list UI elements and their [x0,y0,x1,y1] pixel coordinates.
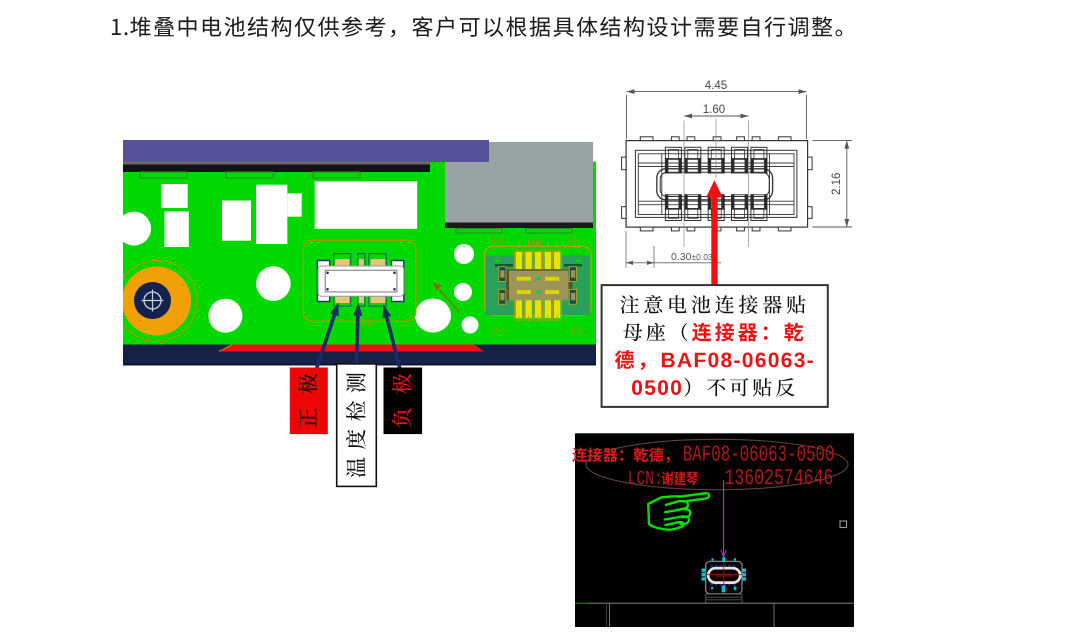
svg-text:0 1: 0 1 [493,326,506,336]
svg-text:1.0: 1.0 [492,236,505,246]
svg-text:2.16: 2.16 [831,173,843,195]
svg-text:4.45: 4.45 [705,80,727,92]
svg-text:0 5: 0 5 [571,326,584,336]
svg-text:0.6: 0.6 [567,236,580,246]
svg-text:0.30±0.03: 0.30±0.03 [671,251,713,263]
svg-text:1.60: 1.60 [703,104,725,116]
